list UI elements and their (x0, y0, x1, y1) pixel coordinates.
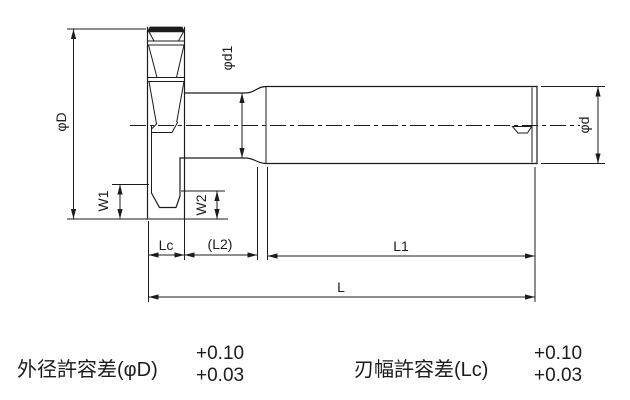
L1-label: L1 (393, 238, 409, 254)
edge-width-tolerance-lower: +0.03 (534, 365, 582, 386)
tooth-tip-detail (152, 122, 178, 194)
outer-diameter-tolerance-label: 外径許容差(φD) (17, 358, 158, 381)
cutter-top-land (148, 27, 185, 32)
neck-shank-bottom (180, 158, 537, 164)
outer-diameter-tolerance-upper: +0.10 (196, 343, 244, 364)
Lc-label: Lc (159, 237, 174, 253)
outer-diameter-tolerance-lower: +0.03 (196, 365, 244, 386)
phiD-label: φD (53, 112, 69, 131)
phid-label: φd (576, 117, 592, 134)
cutter-head-outline (148, 28, 185, 220)
edge-width-tolerance-label: 刃幅許容差(Lc) (354, 358, 488, 381)
L2-label: (L2) (208, 236, 233, 252)
technical-drawing: φD W1 W2 φd1 φd Lc (L2) L1 L 外径許容差(φD) (0, 0, 630, 400)
L-label: L (337, 279, 345, 295)
W2-label: W2 (193, 194, 209, 215)
cutter-part (130, 27, 580, 219)
bottom-tooth-gash (152, 158, 181, 208)
phid1-label: φd1 (219, 45, 235, 70)
tolerance-notes: 外径許容差(φD) +0.10 +0.03 刃幅許容差(Lc) +0.10 +0… (17, 343, 582, 386)
W1-label: W1 (95, 190, 111, 211)
drawing-canvas: φD W1 W2 φd1 φd Lc (L2) L1 L 外径許容差(φD) (0, 0, 630, 400)
dimensions: φD W1 W2 φd1 φd Lc (L2) L1 L (53, 29, 605, 302)
edge-width-tolerance-upper: +0.10 (534, 343, 582, 364)
neck-shank-top (185, 87, 538, 94)
center-hole-detail (513, 127, 533, 134)
